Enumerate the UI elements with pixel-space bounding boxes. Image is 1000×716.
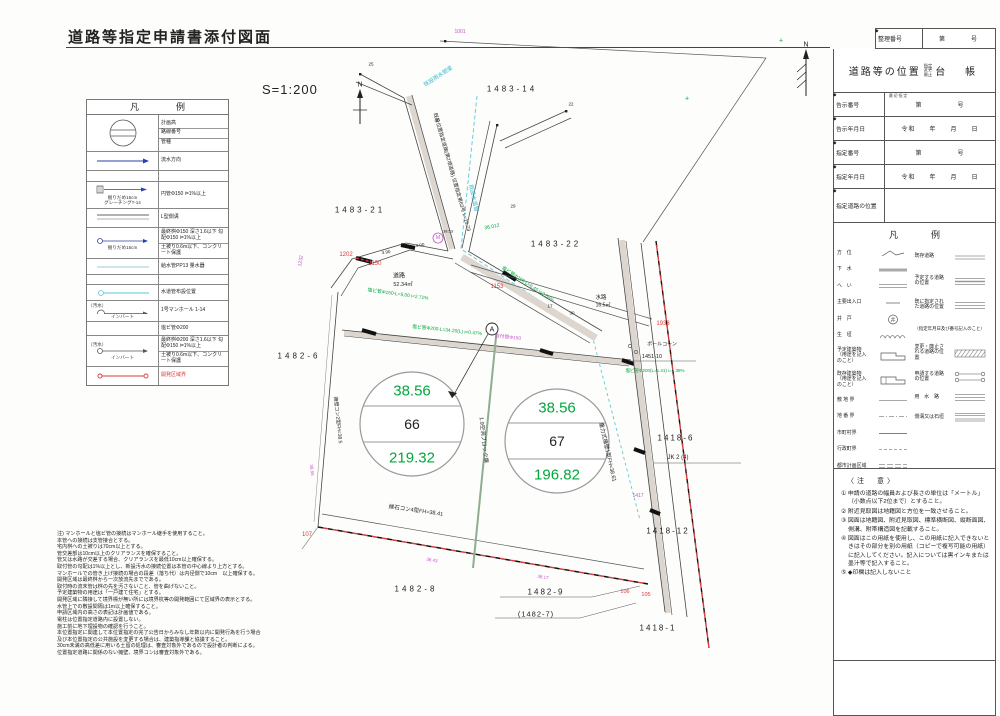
row-label: 告示年月日: [836, 124, 865, 133]
sidebar-legend-left-column: 方 位 下 水 へ い 主要出入口 井 戸 井 生 垣 予定建築物（用途を記入の…: [837, 245, 915, 475]
note-line: 取付管の勾配は1%以上とし、新設汚水の接続位置は本管の中心線より上方とする。: [57, 564, 347, 571]
legend-label: 変更・廃止される道路の位置: [915, 345, 949, 361]
designation-date-row: ◆ 指定年月日 令和 年 月 日: [833, 165, 996, 189]
l-gutter-icon: [95, 213, 151, 223]
note-line: 開発区域に隣接して境界標が無い所には境界杭等の開発範囲にて区域界の表示とする。: [57, 597, 347, 604]
planned-road-icon: [954, 277, 986, 286]
register-number-row: ◆ 整理番号 第 号: [875, 28, 996, 49]
district-boundary-icon: [878, 447, 908, 452]
row-value: 第 号: [915, 100, 964, 109]
fence-line-icon: [878, 283, 908, 289]
legend-text: 路線番号: [159, 129, 228, 139]
north-symbol-icon: [878, 249, 908, 258]
top-road: [356, 40, 571, 251]
drawing-sheet: { "page": { "title": "道路等指定申請書添付図面", "sc…: [0, 0, 1000, 706]
sewer-line-icon: [878, 267, 908, 273]
legend-text: L型側溝: [159, 214, 228, 223]
register-sidebar: ◆ 整理番号 第 号 道路等の位置 指定 変更 廃止 台 帳 ◆ 告示番号 最初…: [833, 28, 996, 692]
legend-label: 申請する道路の位置: [915, 372, 949, 383]
legend-text: 最終桝Φ200 深さ1.6以下 勾配Φ150 i=1%以上: [159, 336, 228, 352]
legend-label: 敷 地 界: [837, 398, 871, 403]
legend-row-waterpipe: 水道管布設位置: [87, 285, 228, 301]
row-value: 第 号: [885, 141, 995, 164]
abolished-road-icon: [954, 349, 986, 358]
legend-label: 市町村界: [837, 431, 871, 436]
row-label: 指定道路の位置: [836, 201, 877, 210]
legend-label: 既に指定された道路の位置: [915, 300, 949, 311]
row-label: 指定年月日: [836, 172, 865, 181]
municipal-boundary-icon: [878, 431, 908, 436]
note-item: ⑤ ◆印欄は記入しないこと: [839, 569, 990, 577]
sub-abolish: 廃止: [924, 73, 932, 78]
planned-building-icon: [878, 350, 908, 362]
row-label: 告示番号: [836, 100, 859, 109]
register-header: 道路等の位置 指定 変更 廃止 台 帳: [833, 49, 996, 93]
site-boundary-icon: [878, 398, 908, 403]
legend-row-final-basin150: 掘りだめ15cm 最終桝Φ150 深さ1.6以下 勾配Φ150 i=1%以上 土…: [87, 228, 228, 259]
svg-text:井: 井: [890, 316, 895, 323]
legend-panel-left: 凡 例 計画高 路線番号 管種 流水方向: [86, 99, 229, 386]
legend-row-manhole-sewer: （汚水） インバート 1号マンホール 1-14: [87, 301, 228, 322]
dev-boundary-icon: [95, 372, 151, 380]
diamond-mark: ◆: [833, 164, 836, 170]
legend-text: 管種: [159, 139, 228, 148]
lot-boundary-icon: [878, 414, 908, 419]
sidebar-legend: 凡 例 方 位 下 水 へ い 主要出入口 井 戸 井 生 垣 予定建築物（用途…: [833, 223, 996, 469]
legend-text: 開発区域界: [159, 372, 228, 381]
legend-text: 計画高: [159, 119, 228, 129]
legend-row-vinyl200: 塩ビ管Φ200: [87, 322, 228, 336]
legend-label: 予定する道路の位置: [915, 276, 949, 287]
note-line: 本位置指定に関連して本位置指定の完了公告日からみなし年数以内に開発行為を行う場合: [57, 630, 347, 637]
legend-row-manhole: 計画高 路線番号 管種: [87, 115, 228, 152]
legend-caption: 掘りだめ15cm: [108, 245, 138, 250]
legend-text: 1号マンホール 1-14: [159, 307, 228, 316]
notice-number-row: ◆ 告示番号 最初指定 第 号: [833, 93, 996, 117]
legend-text: 塩ビ管Φ200: [159, 324, 228, 333]
legend-text: 給水管PP13 量水器: [159, 262, 228, 271]
diamond-mark: ◆: [833, 140, 836, 146]
construction-notes: 注) マンホールと塩ビ管の接続はマンホール継手を使用すること。本管への接続は支管…: [57, 531, 347, 657]
water-pipe-icon: [95, 289, 151, 297]
irrigation-channel-icon: [954, 393, 986, 402]
note-line: 申請区域内の高さの表記は計画値である。: [57, 610, 347, 617]
legend-label: 用 水 路: [915, 395, 949, 400]
register-title-main: 道路等の位置: [849, 63, 921, 78]
sidebar-notes: 〈注 意〉 ① 申請の道路の幅員および長さの単位は「メートル」（小数点以下2位ま…: [833, 469, 996, 661]
register-number-label: 整理番号: [878, 34, 902, 43]
junction-gate-bars: [356, 245, 415, 262]
note-line: 注) マンホールと塩ビ管の接続はマンホール継手を使用すること。: [57, 531, 347, 538]
legend-text: 円管Φ150 i=1%以上: [159, 191, 228, 200]
legend-text: 土被り0.6m以下、コンクリート保護: [159, 352, 228, 367]
register-title-tail: 台 帳: [935, 63, 980, 78]
applied-road-icon: [954, 371, 986, 383]
legend-text: 水道管布設位置: [159, 288, 228, 297]
basin-pipe-icon: [95, 237, 151, 245]
legend-label: 既存道路: [915, 254, 949, 259]
sidebar-legend-right-column: 既存道路 予定する道路の位置 既に指定された道路の位置 （指定年月日及び番号記入…: [915, 245, 993, 475]
existing-building-icon: [878, 374, 908, 386]
legend-note: （指定年月日及び番号記入のこと）: [915, 327, 993, 332]
row-value: 令和 年 月 日: [885, 117, 995, 140]
legend-label: 地 番 界: [837, 414, 871, 419]
register-number-value: 第 号: [923, 29, 995, 48]
designation-number-row: ◆ 指定番号 第 号: [833, 141, 996, 165]
existing-road-icon: [954, 254, 986, 261]
legend-text: 最終桝Φ150 深さ1.6以下 勾配Φ150 i=1%以上: [159, 228, 228, 244]
note-item: ② 附近見取図は地籍図と方位を一致させること。: [839, 508, 990, 516]
legend-left-title: 凡 例: [87, 100, 228, 115]
legend-label: 主要出入口: [837, 300, 871, 305]
diagonal-road: [455, 251, 602, 343]
register-title-sub: 指定 変更 廃止: [924, 64, 932, 78]
lot-circle-1: [360, 372, 464, 476]
legend-row-grating: 掘りだめ15cm グレーチングT-14 円管Φ150 i=1%以上: [87, 182, 228, 209]
north-arrow-right: [797, 49, 809, 96]
note-line: 開発区域は最終桝から一次放流先までである。: [57, 577, 347, 584]
legend-row-spacer: [87, 171, 228, 182]
meter-marker: [433, 233, 443, 243]
diamond-mark: ◆: [833, 92, 836, 98]
designated-road-icon: [954, 301, 986, 310]
manhole-symbol-icon: [108, 118, 138, 148]
legend-caption: インバート: [111, 314, 134, 319]
diamond-mark: ◆: [833, 116, 836, 122]
notice-date-row: ◆ 告示年月日 令和 年 月 日: [833, 117, 996, 141]
legend-label: 側溝又は石垣: [915, 415, 949, 420]
legend-label: 既存建築物（用途を記入のこと）: [837, 372, 871, 388]
note-line: 電柱は位置指定道路内に設置しない。: [57, 617, 347, 624]
lot-circle-2: [505, 389, 609, 493]
legend-text: 土被り0.6m以下、コンクリート保護: [159, 244, 228, 259]
legend-label: 方 位: [837, 251, 871, 256]
gutter-stonewall-icon: [954, 412, 986, 423]
note-line: 30cm未満の高低差に用いる土留の処理は、審査対象外であるので設計者の判断による…: [57, 643, 347, 650]
legend-label: 予定建築物（用途を記入のこと）: [837, 348, 871, 364]
entrance-line-icon: [878, 300, 908, 306]
legend-row-flow: 流水方向: [87, 152, 228, 171]
legend-row-gutter: L型側溝: [87, 209, 228, 228]
legend-row-spacer: [87, 275, 228, 285]
note-line: 宅内桝への土被りは70cm以上とする。: [57, 544, 347, 551]
legend-label: 生 垣: [837, 333, 871, 338]
lot-divider-line: [473, 327, 497, 568]
legend-row-devboundary: 開発区域界: [87, 367, 228, 385]
row-value: 令和 年 月 日: [885, 165, 995, 188]
diamond-mark: ◆: [875, 28, 878, 34]
right-road: [618, 238, 709, 648]
legend-label: 井 戸: [837, 317, 871, 322]
legend-label: 下 水: [837, 267, 871, 272]
note-item: ④ 図面はこの用紙を使用し、この用紙に記入できないときはその部分を別の用紙（コピ…: [839, 535, 990, 569]
legend-label: 行政町界: [837, 447, 871, 452]
service-pipe-icon: [95, 264, 151, 270]
designated-road-location-row: ◆ 指定道路の位置: [833, 189, 996, 223]
legend-caption: インバート: [111, 355, 134, 360]
row-note: 最初指定: [889, 94, 908, 99]
sidebar-empty-box: [833, 661, 996, 716]
boundary-lines: [440, 41, 766, 242]
legend-caption: グレーチングT-14: [104, 200, 141, 205]
legend-label: 都市計画区域: [837, 464, 871, 469]
note-item: ③ 図面は地籍図、附近見取図、標準横断図、縦断面図、側溝、附帯構造図を記載するこ…: [839, 517, 990, 534]
row-label: 指定番号: [836, 148, 859, 157]
grating-symbol-icon: [95, 185, 151, 195]
sewer-basin-icon: [95, 347, 151, 355]
row-value: [885, 189, 995, 222]
notes-title: 〈注 意〉: [847, 476, 990, 486]
legend-row-final-basin200: （汚水） インバート 最終桝Φ200 深さ1.6以下 勾配Φ150 i=1%以上…: [87, 336, 228, 367]
note-line: 位置指定道路に関係のない擁壁、境界コンは審査対象外である。: [57, 650, 347, 657]
north-arrow-left: [353, 89, 367, 124]
legend-row-service: 給水管PP13 量水器: [87, 259, 228, 275]
junction-road: [331, 243, 453, 296]
note-item: ① 申請の道路の幅員および長さの単位は「メートル」（小数点以下2位まで）とするこ…: [839, 490, 990, 507]
well-icon: 井: [878, 314, 908, 325]
sidebar-legend-title: 凡 例: [837, 225, 992, 245]
legend-label: へ い: [837, 284, 871, 289]
hedge-icon: [878, 332, 908, 340]
city-plan-area-icon: [878, 463, 908, 469]
flow-arrow-icon: [95, 157, 151, 165]
legend-text: 流水方向: [159, 157, 228, 166]
diamond-mark: ◆: [833, 188, 836, 194]
